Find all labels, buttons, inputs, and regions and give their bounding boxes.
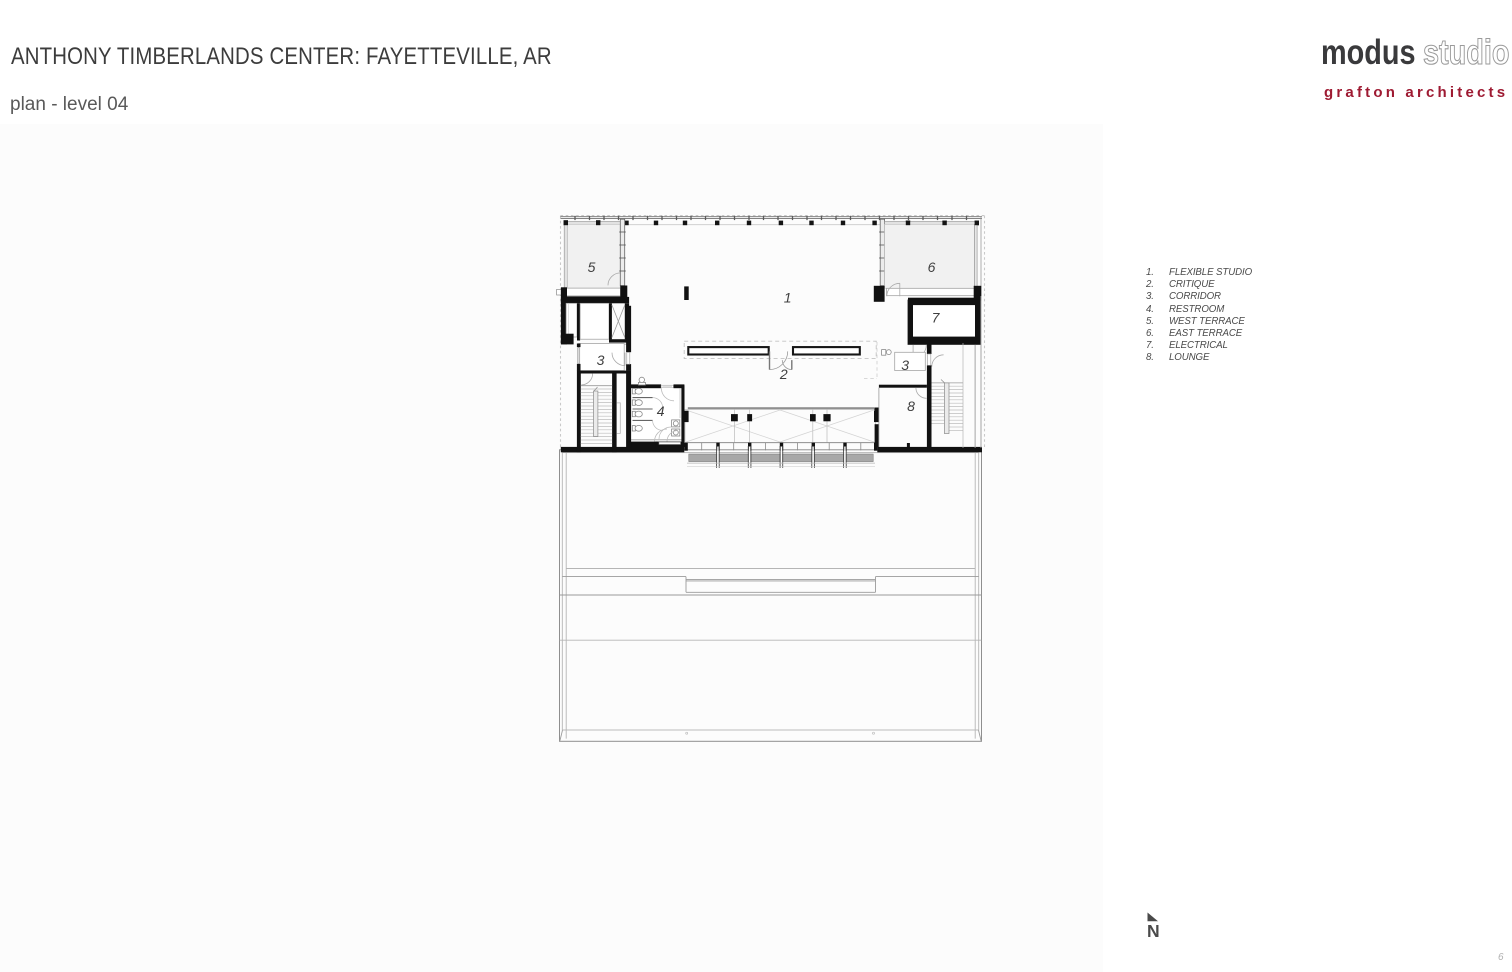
svg-text:5: 5	[588, 259, 596, 275]
svg-text:2: 2	[779, 366, 788, 382]
svg-text:7: 7	[932, 310, 941, 326]
svg-text:4: 4	[657, 403, 665, 419]
svg-text:8: 8	[907, 398, 915, 414]
svg-text:3: 3	[597, 352, 605, 368]
svg-text:3: 3	[901, 357, 909, 373]
svg-text:N: N	[1147, 921, 1160, 941]
svg-text:6: 6	[928, 259, 936, 275]
svg-text:1: 1	[784, 290, 792, 306]
